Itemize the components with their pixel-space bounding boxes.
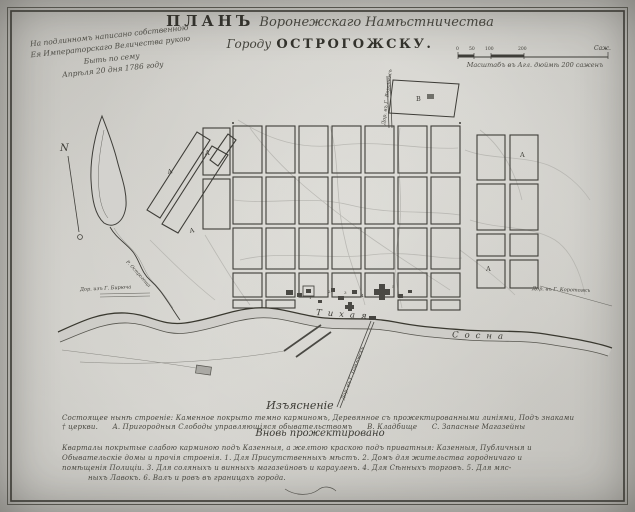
- city-grid-blocks: [203, 122, 461, 310]
- title-city-name: ОСТРОГОЖСКУ.: [276, 37, 433, 52]
- scale-unit-label: Саж.: [594, 45, 611, 52]
- building-number: 3: [344, 290, 347, 295]
- roads: [62, 286, 612, 408]
- title-city-prefix: Городу: [227, 37, 272, 51]
- title-region: Воронежскаго Намѣстничества: [259, 15, 493, 30]
- block-letter-a: A: [485, 265, 491, 273]
- north-arrow: N: [59, 143, 82, 239]
- legend-subheader: Вновь прожектировано: [40, 428, 600, 439]
- north-letter: N: [59, 143, 70, 154]
- block-letter-a: A: [204, 149, 210, 157]
- block-letter-a: A: [166, 167, 174, 176]
- building-number: 2: [328, 289, 331, 294]
- building-number: 4: [361, 293, 364, 298]
- cemetery-block: [387, 76, 459, 128]
- map-sheet: N 0 50 100 200 Саж. Тихая Сосна Р. Остро…: [0, 0, 635, 512]
- legend-projected-line3: помѣщенія Полиціи. 3. Для соляныхъ и вин…: [62, 464, 582, 472]
- legend-existing-line1: Состоящее нынѣ строеніе: Каменное покрыт…: [62, 414, 582, 422]
- west-sloboda-strips: [147, 132, 236, 233]
- legend-projected-line1: Кварталы покрытые слабою карминою подъ К…: [62, 444, 582, 452]
- river-label-2: Сосна: [452, 330, 509, 342]
- block-letter-a: A: [188, 226, 196, 235]
- block-letter-b: B: [416, 95, 421, 103]
- legend-projected-line2: Обывательскіе домы и прочія строенія. 1.…: [62, 454, 582, 462]
- road-west-label: Дор. изъ Г. Бирюча: [79, 284, 132, 293]
- riverside-structure: [196, 365, 212, 375]
- legend-projected-line4: ныхъ Лавокъ. 6. Валъ и ровъ въ границахъ…: [88, 474, 286, 482]
- scale-caption: Масштабъ въ Агл. дюймѣ 200 саженъ: [455, 61, 615, 69]
- map-labels: Тихая Сосна Р. Острогоща Дор. изъ Г. Бир…: [79, 68, 591, 401]
- legend-flourish: [285, 487, 336, 494]
- road-south-label: Дор. въ Г. Павловскъ: [340, 345, 366, 401]
- block-letter-a: A: [519, 151, 525, 159]
- legend-header: Изъясненіе: [20, 399, 580, 412]
- road-east-label: Дор. въ Г. Коротоякъ: [531, 286, 591, 294]
- building-number: 1: [309, 295, 312, 300]
